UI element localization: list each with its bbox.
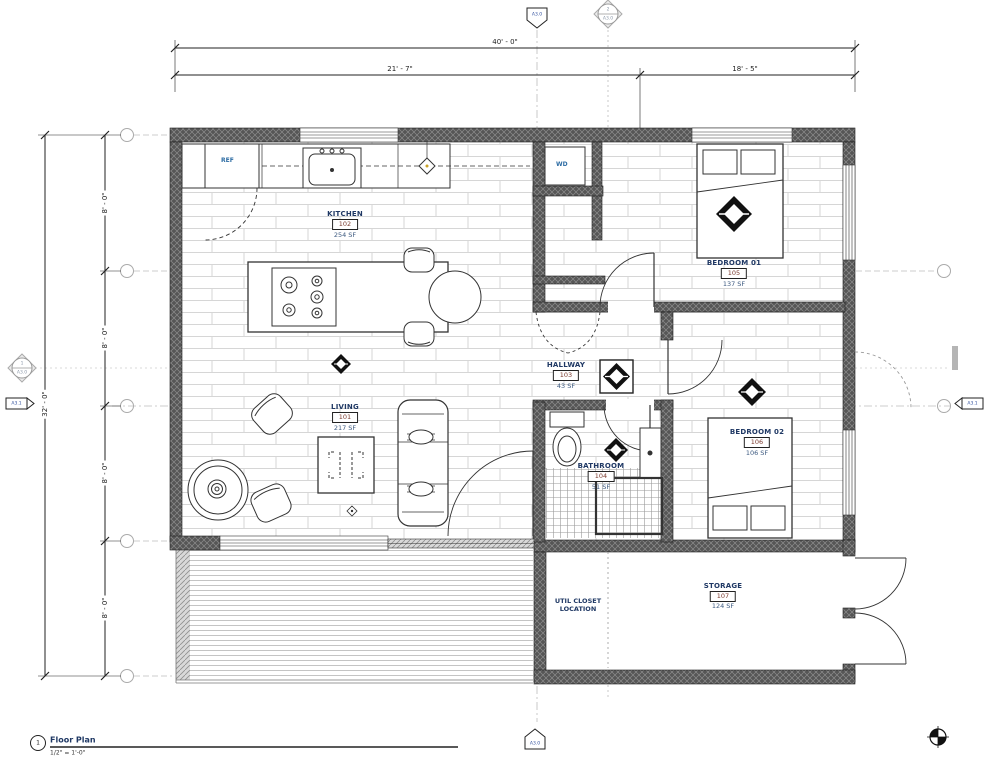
bedroom01-furniture [697,144,783,258]
sliding-door [388,539,534,548]
round-table [429,271,481,323]
elevation-marker-left [6,398,34,409]
wall-storage-east-1 [843,540,855,556]
refrigerator-box [205,144,259,188]
stool-2 [404,322,434,346]
window-bedroom01 [692,128,792,142]
wall-storage-north [534,540,855,552]
section-marker-top [527,8,547,28]
pillow [713,506,747,530]
wall-storage-south [534,670,855,684]
floor-plan-sheet: 40' - 0" 21' - 7" 18' - 5" 32' - 0" 8' -… [0,0,990,764]
deck-edge-hatch [176,548,190,680]
detail-marker-top [594,0,622,28]
pillow [741,150,775,174]
section-marker-left [8,354,36,382]
ceiling-light-hallway [600,360,633,393]
wall-west [170,142,182,542]
wall-storage-west [534,552,546,682]
view-title-block [31,736,459,751]
window-east-1 [843,165,855,260]
wall-bedroom-divider [533,302,845,312]
vanity-sink [640,428,661,478]
area-rug [188,460,248,520]
wall-hall-west [533,142,545,312]
wall-south-1 [170,536,220,550]
elevation-marker-right [952,346,983,409]
wall-bathroom-west [533,402,545,542]
wall-bedroom02-west-1 [661,312,673,340]
window-kitchen [300,128,398,142]
pillow [703,150,737,174]
stool-1 [404,248,434,272]
kitchen-sink [303,148,361,188]
bedroom02-furniture [708,418,792,538]
window-living-south [220,536,388,550]
pillow [751,506,785,530]
wall-wd-south [533,186,603,196]
section-marker-bottom [525,729,545,749]
coffee-table [318,437,374,493]
washer-dryer-box [542,147,585,185]
window-east-2 [843,430,855,515]
sofa [398,400,448,526]
door-french-storage [855,558,906,664]
cooktop [272,268,336,326]
storage-floor [546,552,843,670]
floor-plan-drawing [0,0,990,764]
wall-closet [533,276,605,284]
door-swing-exterior-east [855,352,911,408]
north-benchmark [927,726,949,748]
wall-storage-east-2 [843,608,855,618]
deck-boards [176,548,533,680]
toilet [550,412,584,466]
